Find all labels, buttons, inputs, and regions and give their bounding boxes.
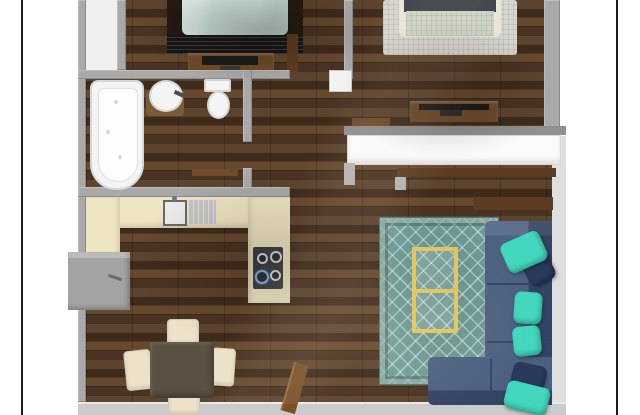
sofa-pillow-teal — [513, 291, 543, 325]
kitchen-drainboard — [188, 200, 216, 224]
coffee-table-crossbar — [416, 289, 454, 293]
hall-door-white — [329, 70, 352, 92]
burner — [270, 251, 282, 263]
bathroom-sink — [149, 80, 183, 112]
left-outer-wall — [78, 0, 86, 402]
white-sideboard — [347, 135, 561, 165]
closet-wall — [117, 0, 126, 70]
bedroom1-striped-rug — [167, 35, 303, 54]
kitchen-faucet — [172, 196, 177, 201]
dining-chair-bottom — [168, 395, 200, 415]
burner-lit — [255, 270, 269, 284]
kitchen-sink — [163, 200, 187, 226]
bathtub-basin — [98, 88, 138, 182]
floorplan-render — [0, 0, 640, 415]
bedroom2-bed-blanket — [406, 11, 494, 36]
frame-line-left — [21, 0, 23, 415]
burner — [257, 253, 268, 264]
sofa-pillow-teal — [512, 325, 543, 358]
console-shelf — [397, 168, 556, 177]
burner — [270, 270, 281, 281]
bedroom-divider-wall — [344, 0, 353, 79]
right-outer-wall-top — [544, 0, 560, 136]
bathtub-jet — [106, 130, 110, 134]
bathtub-jet — [118, 155, 122, 159]
frame-line-right — [616, 0, 618, 415]
cooktop — [253, 247, 283, 289]
kitchen-counter-left — [86, 197, 120, 255]
bedroom1-side-cabinet — [287, 34, 298, 72]
bedroom1-bed-blanket — [182, 0, 288, 35]
sideboard-leg — [344, 163, 355, 185]
sideboard-back-wall — [344, 126, 566, 135]
coffee-table — [412, 247, 458, 333]
hall-shelf — [192, 169, 238, 176]
console-shelf-leg — [395, 177, 406, 190]
closet-floor — [86, 0, 117, 70]
sofa-back-table — [473, 197, 553, 210]
sofa-seam — [490, 359, 492, 403]
bathroom-right-wall-upper — [243, 70, 252, 142]
hall-bench — [352, 118, 390, 126]
toilet-bowl — [207, 91, 230, 119]
bathroom-top-wall — [78, 70, 290, 79]
dining-table — [150, 342, 214, 398]
bedroom1-tv — [202, 56, 258, 65]
bedroom2-tv-base — [440, 110, 462, 116]
bathtub-jet — [114, 100, 118, 104]
